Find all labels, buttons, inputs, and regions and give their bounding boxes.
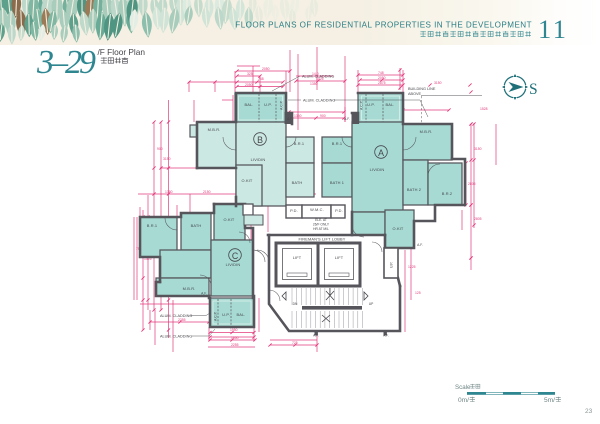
svg-text:ALUM. CLADDING: ALUM. CLADDING <box>160 335 192 339</box>
svg-text:2875: 2875 <box>378 81 386 85</box>
svg-text:23: 23 <box>585 408 593 415</box>
svg-text:1350: 1350 <box>310 82 318 86</box>
svg-text:Scale: Scale <box>455 384 471 391</box>
svg-text:2255: 2255 <box>178 318 186 322</box>
svg-text:LIFT: LIFT <box>293 255 302 260</box>
svg-text:W.M.C.: W.M.C. <box>310 207 324 212</box>
svg-text:B.R.1: B.R.1 <box>332 141 342 146</box>
svg-text:2255: 2255 <box>231 343 239 347</box>
svg-text:FIREMAN'S LIFT LOBBY: FIREMAN'S LIFT LOBBY <box>299 237 346 242</box>
svg-text:5m/: 5m/ <box>544 397 555 404</box>
svg-text:U.P.: U.P. <box>367 102 375 107</box>
svg-text:2805: 2805 <box>468 182 476 186</box>
svg-text:O.KIT: O.KIT <box>242 178 253 183</box>
svg-text:1950: 1950 <box>230 328 238 332</box>
svg-text:748: 748 <box>258 77 264 81</box>
svg-text:3150: 3150 <box>474 147 482 151</box>
svg-text:2805: 2805 <box>474 217 482 221</box>
svg-text:M.B.R.: M.B.R. <box>183 286 196 291</box>
svg-text:BAL.: BAL. <box>244 102 253 107</box>
svg-text:BATH: BATH <box>292 180 303 185</box>
svg-text:LIV/DIN: LIV/DIN <box>251 157 266 162</box>
svg-text:M.B.R.: M.B.R. <box>208 127 221 132</box>
svg-text:A.C.P.: A.C.P. <box>214 311 218 321</box>
svg-text:11: 11 <box>538 14 569 44</box>
svg-text:LIFT: LIFT <box>335 255 344 260</box>
svg-text:3150: 3150 <box>163 157 171 161</box>
svg-text:FLOOR PLANS OF RESIDENTIAL PRO: FLOOR PLANS OF RESIDENTIAL PROPERTIES IN… <box>235 21 532 30</box>
svg-text:P.D.: P.D. <box>290 208 298 213</box>
svg-text:M.B.R.: M.B.R. <box>420 129 433 134</box>
svg-text:3150: 3150 <box>434 81 442 85</box>
svg-text:ALUM. CLADDING: ALUM. CLADDING <box>160 314 192 318</box>
svg-text:1528: 1528 <box>480 107 488 111</box>
svg-text:HR AT M/L: HR AT M/L <box>313 227 329 231</box>
svg-text:LIV/DIN: LIV/DIN <box>226 262 241 267</box>
svg-text:O.KIT: O.KIT <box>393 226 404 231</box>
svg-text:725: 725 <box>292 341 298 345</box>
svg-text:3–29: 3–29 <box>36 44 96 81</box>
svg-text:ELE. AT: ELE. AT <box>315 218 327 222</box>
svg-text:U.P.: U.P. <box>222 312 230 317</box>
svg-text:BUILDING LINE: BUILDING LINE <box>408 87 436 91</box>
svg-text:/F Floor Plan: /F Floor Plan <box>98 47 146 57</box>
svg-text:2050: 2050 <box>245 83 253 87</box>
svg-text:ALUM. CLADDING: ALUM. CLADDING <box>303 99 335 103</box>
svg-text:U.P.: U.P. <box>390 262 394 268</box>
svg-text:26/F ONLY: 26/F ONLY <box>313 223 330 227</box>
svg-text:A.C.P.: A.C.P. <box>280 100 284 110</box>
svg-text:2150: 2150 <box>203 190 211 194</box>
svg-text:B.R.1: B.R.1 <box>294 141 304 146</box>
svg-text:A.F.: A.F. <box>417 243 423 247</box>
svg-text:2050: 2050 <box>262 67 270 71</box>
svg-text:A.F.: A.F. <box>383 334 389 338</box>
svg-text:1350: 1350 <box>294 114 302 118</box>
svg-text:ALUM. CLADDING: ALUM. CLADDING <box>302 75 334 79</box>
svg-text:LIV/DIN: LIV/DIN <box>370 167 385 172</box>
svg-text:1950: 1950 <box>231 336 239 340</box>
svg-text:C: C <box>232 251 239 261</box>
svg-text:748: 748 <box>378 71 384 75</box>
svg-text:125: 125 <box>415 291 421 295</box>
svg-text:P.D.: P.D. <box>335 208 343 213</box>
svg-text:A.F.: A.F. <box>344 117 350 121</box>
svg-text:BATH 2: BATH 2 <box>407 187 421 192</box>
svg-text:B.R.1: B.R.1 <box>147 223 157 228</box>
svg-text:S: S <box>529 81 538 98</box>
svg-text:ABOVE: ABOVE <box>408 92 422 96</box>
svg-text:325: 325 <box>247 72 253 76</box>
svg-text:A: A <box>378 148 384 158</box>
svg-text:900: 900 <box>157 147 163 151</box>
svg-text:BATH 1: BATH 1 <box>330 180 344 185</box>
svg-text:A.F.: A.F. <box>313 334 319 338</box>
svg-text:UP: UP <box>369 302 374 306</box>
svg-text:BAL.: BAL. <box>385 102 394 107</box>
svg-text:DN: DN <box>293 302 298 306</box>
svg-text:B: B <box>257 135 263 145</box>
svg-text:2050: 2050 <box>378 76 386 80</box>
svg-text:BATH: BATH <box>191 223 202 228</box>
svg-text:1225: 1225 <box>408 265 416 269</box>
svg-text:A.F.: A.F. <box>287 117 293 121</box>
svg-text:1350: 1350 <box>165 190 173 194</box>
svg-text:0m/: 0m/ <box>458 397 469 404</box>
svg-text:900: 900 <box>320 114 326 118</box>
svg-text:U.P.: U.P. <box>264 102 272 107</box>
svg-text:B.R.2: B.R.2 <box>442 191 452 196</box>
svg-text:O.KIT: O.KIT <box>224 217 235 222</box>
svg-text:A.F.: A.F. <box>201 292 207 296</box>
svg-text:A.C.P.: A.C.P. <box>360 100 364 110</box>
svg-text:BAL.: BAL. <box>236 312 245 317</box>
